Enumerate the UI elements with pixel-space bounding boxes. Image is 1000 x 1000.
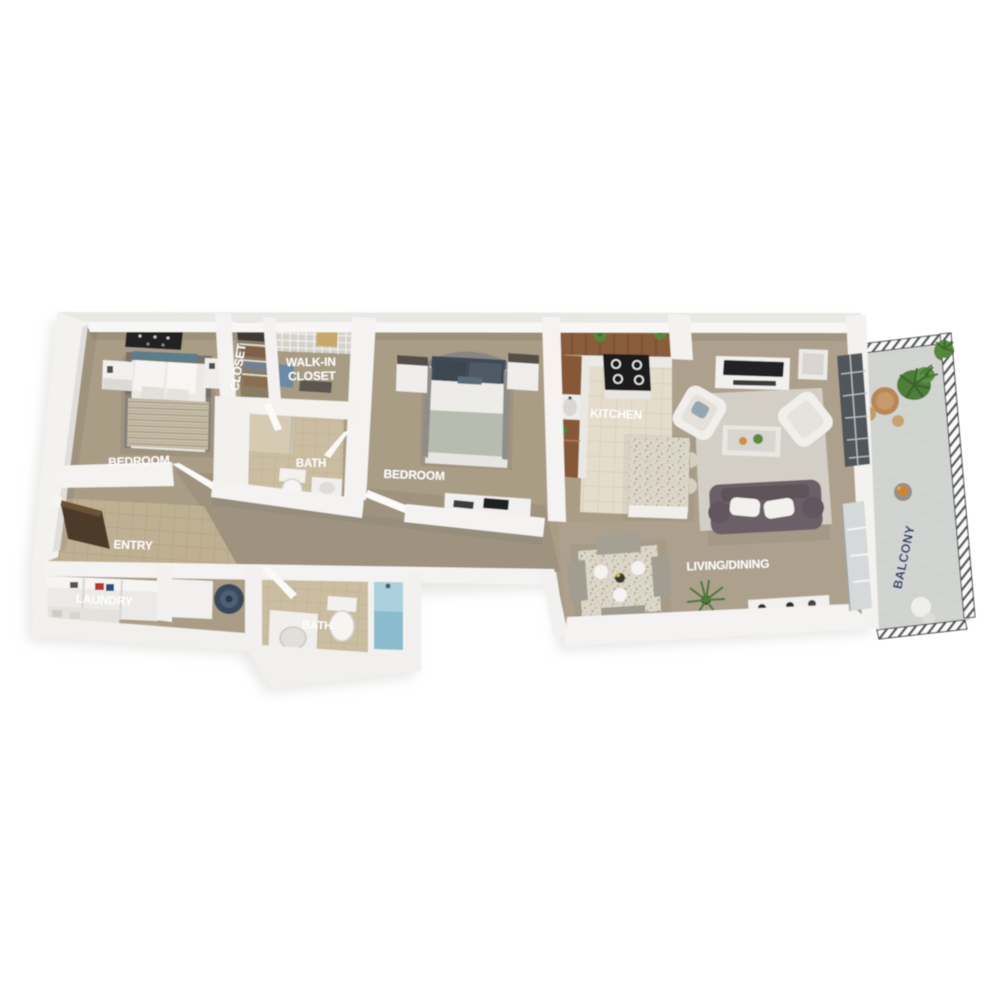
svg-text:LIVING/DINING: LIVING/DINING [686, 557, 769, 574]
svg-text:KITCHEN: KITCHEN [590, 406, 642, 422]
svg-text:BATH: BATH [302, 619, 333, 632]
svg-text:CLOSET: CLOSET [288, 369, 337, 384]
svg-text:ENTRY: ENTRY [113, 537, 153, 552]
svg-text:BEDROOM: BEDROOM [383, 467, 445, 483]
svg-text:BATH: BATH [296, 458, 326, 470]
svg-text:BEDROOM: BEDROOM [108, 453, 170, 469]
svg-text:LAUNDRY: LAUNDRY [75, 592, 133, 609]
svg-text:WALK-IN: WALK-IN [286, 355, 336, 370]
